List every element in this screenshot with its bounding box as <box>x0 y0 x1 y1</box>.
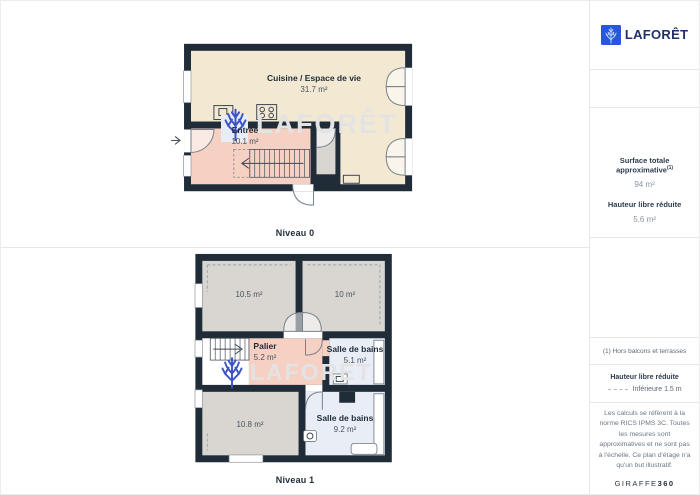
footnote-text: (1) Hors balcons et terrasses <box>603 348 686 355</box>
room-label-salle-de-bains-2: Salle de bains 9.2 m² <box>317 413 374 434</box>
credit-name: GIRAFFE <box>615 479 658 488</box>
sidebar-spacer <box>590 238 699 338</box>
reduced-height-value: 5.6 m² <box>633 215 656 224</box>
room-label-palier: Palier 5.2 m² <box>253 341 276 362</box>
room-area: 10.5 m² <box>235 290 262 299</box>
room-area: 31.7 m² <box>300 85 327 94</box>
room-name: Entrée <box>232 125 258 135</box>
room-area: 10.1 m² <box>231 137 258 146</box>
footnote-section: (1) Hors balcons et terrasses <box>590 338 699 366</box>
dashed-line-icon <box>608 389 628 390</box>
total-surface-label: Surface totale approximative(1) <box>593 156 696 175</box>
niveau-0-plan-drawing <box>1 1 589 247</box>
footnote-marker: (1) <box>667 165 673 171</box>
floor-label-niveau-0: Niveau 0 <box>276 228 315 238</box>
entrance-arrow-icon <box>171 136 180 144</box>
room-name: Salle de bains <box>317 413 374 423</box>
room-area: 10.8 m² <box>236 420 263 429</box>
floorplan-page: LAFORÊT Cuisine / Espace de vie 31.7 m² … <box>0 0 700 495</box>
disclaimer-text: Les calculs se réfèrent à la norme RICS … <box>597 409 692 472</box>
giraffe360-credit: GIRAFFE360 <box>615 479 675 488</box>
total-surface-value: 94 m² <box>634 180 654 189</box>
sidebar-spacer <box>590 70 699 108</box>
room-area: 10 m² <box>335 290 355 299</box>
room-name: Salle de bains <box>327 344 384 354</box>
logo-section: LAFORÊT <box>590 1 699 70</box>
room-label-bedroom-2: 10 m² <box>335 288 355 299</box>
reduced-height-label: Hauteur libre réduite <box>608 200 681 209</box>
info-sidebar: LAFORÊT Surface totale approximative(1) … <box>589 1 699 494</box>
niveau-1-panel: LAFORÊT 10.5 m² 10 m² Palier 5.2 m² Sall… <box>1 248 589 494</box>
room-label-bedroom-1: 10.5 m² <box>235 288 262 299</box>
rooms <box>191 51 405 184</box>
room-name: Cuisine / Espace de vie <box>267 73 361 83</box>
room-area: 5.1 m² <box>344 356 367 365</box>
floorplans-column: LAFORÊT Cuisine / Espace de vie 31.7 m² … <box>1 1 589 494</box>
room-label-entree: Entrée 10.1 m² <box>231 125 258 146</box>
room-label-cuisine: Cuisine / Espace de vie 31.7 m² <box>267 73 361 94</box>
legend-title: Hauteur libre réduite <box>610 374 678 381</box>
room-area: 5.2 m² <box>254 353 277 362</box>
legend-row: Inférieure 1.5 m <box>608 386 682 393</box>
legend-label: Inférieure 1.5 m <box>633 386 682 393</box>
laforet-tree-icon <box>601 25 621 45</box>
credit-suffix: 360 <box>658 479 675 488</box>
legend-section: Hauteur libre réduite Inférieure 1.5 m <box>590 365 699 402</box>
niveau-1-plan-drawing <box>1 248 589 494</box>
niveau-0-panel: LAFORÊT Cuisine / Espace de vie 31.7 m² … <box>1 1 589 248</box>
surface-summary-section: Surface totale approximative(1) 94 m² Ha… <box>590 108 699 238</box>
brand-name: LAFORÊT <box>625 27 688 42</box>
room-name: Palier <box>253 341 276 351</box>
laforet-logo: LAFORÊT <box>601 25 688 45</box>
disclaimer-section: Les calculs se réfèrent à la norme RICS … <box>590 403 699 494</box>
room-label-salle-de-bains-1: Salle de bains 5.1 m² <box>327 344 384 365</box>
room-label-bedroom-3: 10.8 m² <box>236 418 263 429</box>
floor-label-niveau-1: Niveau 1 <box>276 475 315 485</box>
room-area: 9.2 m² <box>334 425 357 434</box>
